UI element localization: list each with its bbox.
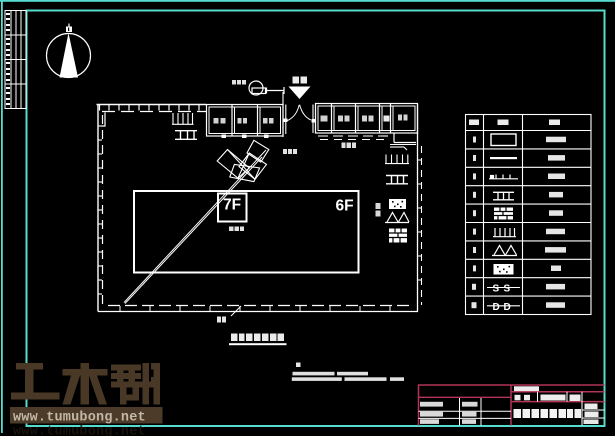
svg-text:S: S [504,284,511,295]
svg-text:www.tumubong.net: www.tumubong.net [13,425,146,436]
svg-text:6F: 6F [336,198,354,215]
svg-text:S: S [493,284,500,295]
svg-text:www.tumubong.net: www.tumubong.net [13,411,146,426]
svg-text:D: D [493,302,500,313]
svg-text:7F: 7F [223,197,241,214]
svg-text:D: D [504,302,511,313]
